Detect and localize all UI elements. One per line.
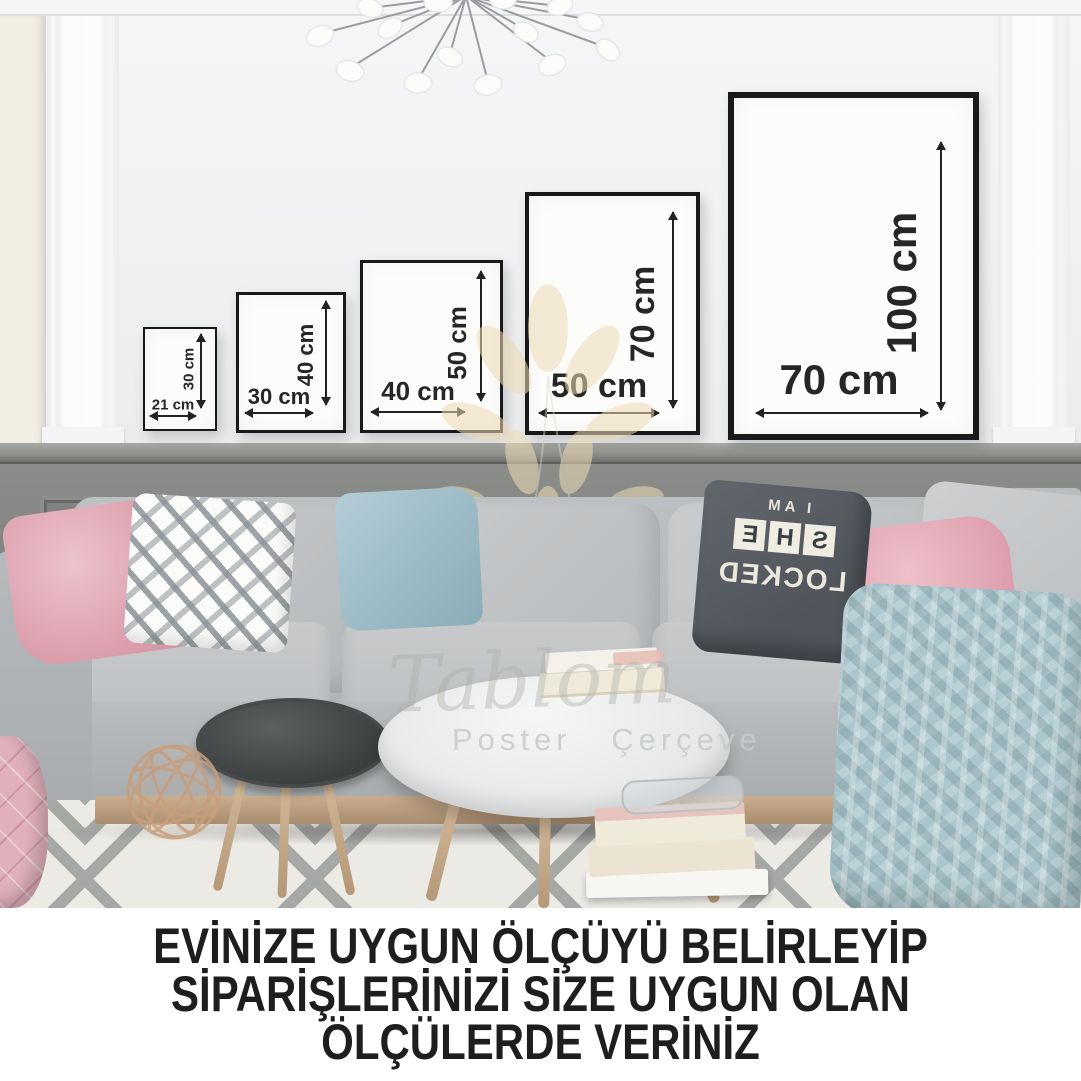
frame-30x40: 30 cm 40 cm: [236, 292, 346, 433]
frame-40x50-height-arrow: [480, 271, 482, 401]
pilaster-right: [998, 16, 1070, 445]
chandelier-bulbs: [303, 0, 623, 98]
glass-roller: [621, 775, 745, 815]
pillow-geometric: [123, 492, 297, 653]
side-table-dark: [196, 698, 389, 788]
pillow-print-mirrored: I AM SHE LOCKED: [696, 479, 873, 600]
frame-50x70-width-arrow: [539, 412, 659, 414]
chandelier: [288, 0, 638, 98]
caption-line-1: EVİNİZE UYGUN ÖLÇÜYÜ BELİRLEYİP: [86, 922, 994, 970]
she-tile: S: [803, 524, 837, 558]
watermark-brand-script: Tablom: [387, 631, 678, 731]
she-tile: H: [768, 521, 802, 555]
wainscot-cap-molding: [0, 443, 1081, 464]
frame-21x30: 21 cm 30 cm: [143, 327, 217, 431]
frame-21x30-width-arrow: [150, 415, 196, 417]
frame-21x30-height-arrow: [200, 334, 202, 408]
frame-30x40-width-arrow: [245, 412, 313, 414]
floor-book-stack: [581, 773, 787, 911]
pillow-print-she-tiles: SHE: [700, 515, 870, 561]
frame-70x100-width-arrow: [756, 412, 928, 414]
frame-30x40-width-label: 30 cm: [248, 386, 310, 408]
watermark-subtitle: Poster Çerçeve: [452, 722, 762, 758]
frame-30x40-height-label: 40 cm: [295, 324, 317, 386]
frame-50x70-width-label: 50 cm: [551, 369, 647, 403]
frame-40x50-height-label: 50 cm: [444, 306, 470, 380]
she-tile: E: [733, 518, 767, 552]
caption-line-2: SİPARİŞLERİNİZİ SİZE UYGUN OLAN: [86, 970, 994, 1018]
frame-70x100-height-arrow: [940, 142, 942, 410]
caption-band: EVİNİZE UYGUN ÖLÇÜYÜ BELİRLEYİP SİPARİŞL…: [0, 908, 1081, 1081]
pillow-print-bottom: LOCKED: [696, 554, 866, 601]
frame-40x50-width-arrow: [371, 411, 465, 413]
pillow-print-top: I AM: [764, 496, 812, 517]
frame-70x100-width-label: 70 cm: [779, 359, 898, 401]
product-image: 21 cm 30 cm 30 cm 40 cm 40 cm 50 cm 50 c…: [0, 0, 1081, 1081]
frame-50x70: 50 cm 70 cm: [525, 192, 700, 435]
frame-50x70-height-label: 70 cm: [626, 266, 660, 362]
frame-30x40-height-arrow: [325, 301, 327, 405]
caption-line-3: ÖLÇÜLERDE VERİNİZ: [86, 1018, 994, 1066]
wire-sphere-decor: [124, 742, 224, 842]
coffee-table-leg: [538, 805, 551, 908]
pilaster-left: [47, 16, 119, 445]
frame-70x100: 70 cm 100 cm: [728, 92, 979, 440]
frame-40x50-width-label: 40 cm: [381, 378, 455, 404]
pillow-blue: [334, 486, 483, 631]
left-cream-wall: [0, 16, 46, 445]
frame-70x100-height-label: 100 cm: [881, 212, 923, 354]
frame-21x30-height-label: 30 cm: [182, 348, 197, 391]
frame-40x50: 40 cm 50 cm: [360, 260, 503, 433]
frame-50x70-height-arrow: [672, 212, 674, 408]
knit-throw-blanket: [827, 582, 1081, 927]
